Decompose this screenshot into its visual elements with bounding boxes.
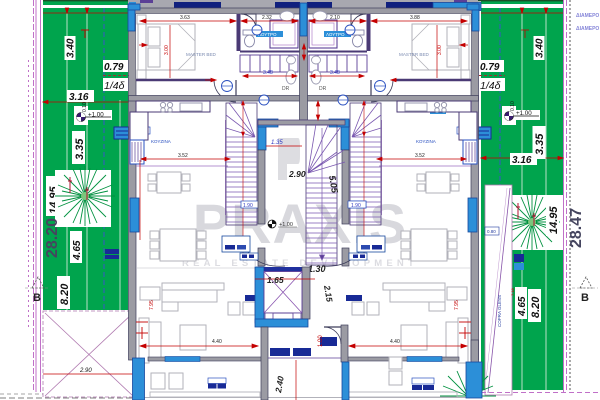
svg-text:0.80: 0.80 — [487, 229, 496, 234]
svg-text:7.95: 7.95 — [149, 300, 155, 310]
svg-text:1.35: 1.35 — [271, 140, 283, 146]
svg-text:3.40: 3.40 — [66, 38, 77, 58]
svg-text:MASTER BED: MASTER BED — [399, 52, 430, 57]
svg-text:3.00: 3.00 — [164, 45, 170, 55]
svg-text:2.32: 2.32 — [262, 15, 272, 21]
svg-text:3.16: 3.16 — [69, 92, 89, 103]
svg-text:0.79: 0.79 — [480, 62, 500, 73]
svg-text:1.90: 1.90 — [243, 203, 253, 209]
svg-text:1.00: 1.00 — [318, 335, 324, 347]
svg-text:B: B — [33, 292, 41, 304]
svg-text:3.35: 3.35 — [74, 138, 86, 160]
svg-text:4.65: 4.65 — [517, 296, 528, 317]
svg-text:0.79: 0.79 — [104, 62, 124, 73]
svg-text:0.10: 0.10 — [82, 102, 88, 112]
svg-text:3.48: 3.48 — [263, 70, 273, 76]
svg-text:ΚΟΥΖΙΝΑ: ΚΟΥΖΙΝΑ — [416, 139, 437, 144]
svg-text:ΚΟΥΖΙΝΑ: ΚΟΥΖΙΝΑ — [151, 139, 172, 144]
svg-text:ΛΟΥΤΡΟ: ΛΟΥΤΡΟ — [326, 32, 345, 37]
svg-text:3.52: 3.52 — [415, 153, 425, 159]
svg-text:4.40: 4.40 — [212, 339, 222, 345]
svg-text:COPRA GLESS: COPRA GLESS — [497, 295, 502, 327]
svg-text:+1.00: +1.00 — [88, 112, 104, 119]
svg-text:3.16: 3.16 — [512, 155, 532, 166]
svg-text:3.48: 3.48 — [330, 70, 340, 76]
svg-text:DR: DR — [319, 86, 327, 92]
svg-text:3.88: 3.88 — [410, 15, 420, 21]
svg-text:ΔΙΑΜΕΡΟ: ΔΙΑΜΕΡΟ — [576, 26, 599, 32]
svg-text:8.20: 8.20 — [59, 283, 71, 305]
svg-text:7.18: 7.18 — [510, 287, 515, 296]
svg-text:ΔΙΑΜΕΡΟ: ΔΙΑΜΕΡΟ — [576, 13, 599, 19]
svg-text:MASTER BED: MASTER BED — [186, 52, 217, 57]
svg-text:28.47: 28.47 — [568, 208, 585, 248]
svg-text:1/4δ: 1/4δ — [104, 80, 125, 92]
svg-text:3.00: 3.00 — [437, 45, 443, 55]
svg-text:2.90: 2.90 — [79, 368, 92, 374]
svg-text:4.65: 4.65 — [72, 240, 83, 261]
svg-text:1.30: 1.30 — [308, 264, 326, 274]
svg-text:1/4δ: 1/4δ — [480, 80, 501, 92]
svg-text:3.52: 3.52 — [178, 153, 188, 159]
svg-text:7.95: 7.95 — [454, 300, 460, 310]
svg-text:B: B — [581, 292, 589, 304]
svg-text:0.10: 0.10 — [510, 101, 516, 111]
svg-text:14.95: 14.95 — [548, 206, 560, 234]
svg-text:2.90: 2.90 — [288, 169, 306, 179]
svg-text:3.40: 3.40 — [535, 38, 546, 58]
svg-text:28.20: 28.20 — [44, 218, 61, 258]
svg-text:2.10: 2.10 — [330, 15, 340, 21]
svg-text:1.90: 1.90 — [351, 203, 361, 209]
svg-text:3.35: 3.35 — [534, 133, 546, 155]
svg-text:3.63: 3.63 — [180, 15, 190, 21]
svg-text:4.40: 4.40 — [390, 339, 400, 345]
svg-text:DR: DR — [282, 86, 290, 92]
svg-text:8.20: 8.20 — [530, 296, 542, 318]
svg-text:1.65: 1.65 — [267, 275, 284, 285]
